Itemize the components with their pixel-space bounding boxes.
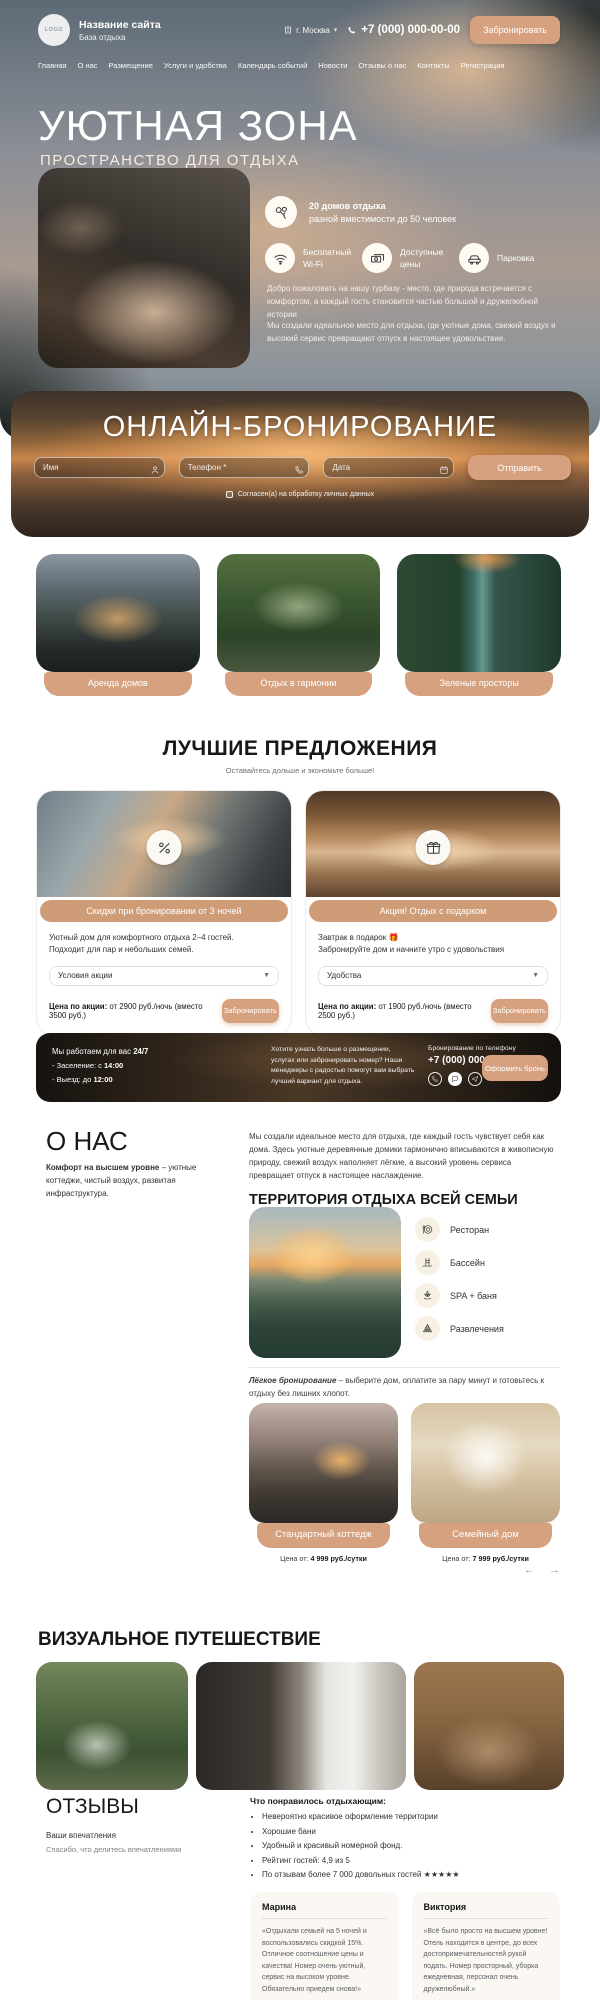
card-green-spaces: Зеленые просторы [397,554,561,696]
card-house-rental: Аренда домов [36,554,200,696]
next-arrow-icon[interactable]: → [549,1564,560,1576]
phone-icon [347,26,356,35]
house-rental-photo [36,554,200,672]
offer-gift-line2: Забронируйте дом и начните утро с удовол… [318,944,548,956]
gallery-photo-hot-tub[interactable] [36,1662,188,1790]
consent-row: Согласен(а) на обработку личных данных [11,491,589,498]
banner-book-button[interactable]: Оформить бронь [482,1055,548,1081]
harmony-label[interactable]: Отдых в гармонии [225,672,373,696]
price-label: Цена по акции: [49,1002,107,1011]
telegram-icon[interactable] [468,1072,482,1086]
gallery [36,1662,564,1790]
site-name-block: Название сайта База отдыха [79,19,161,42]
reviews-subtitle-2: Спасибо, что делитесь впечатлениями [46,1845,181,1854]
restaurant-icon [415,1217,440,1242]
city-label: г. Москва [296,26,330,35]
money-icon [362,243,392,273]
reviews-subtitle-1: Ваши впечатления [46,1831,116,1840]
nav-item-reviews[interactable]: Отзывы о нас [358,61,406,70]
reviews-title: ОТЗЫВЫ [46,1795,139,1819]
about-lead: Комфорт на высшем уровне – уютные коттед… [46,1162,218,1200]
prev-arrow-icon[interactable]: ← [524,1564,535,1576]
offer-gift-price: Цена по акции: от 1900 руб./ночь (вместо… [318,1002,491,1020]
booking-form: Отправить [34,455,571,480]
review-text: «Отдыхали семьей на 5 ночей и воспользов… [262,1926,387,1995]
house-rental-label[interactable]: Аренда домов [44,672,192,696]
nav-item-main[interactable]: Главная [38,61,67,70]
consent-label: Согласен(а) на обработку личных данных [238,491,374,498]
offer-cards: Скидки при бронировании от 3 ночей Уютны… [36,790,561,1036]
hero-paragraph-2: Мы создали идеальное место для отдыха, г… [267,320,559,346]
divider [249,1367,560,1368]
header: LOGO Название сайта База отдыха г. Москв… [38,14,560,46]
amenities-list: Ресторан Бассейн SPA + баня Развлечения [415,1207,504,1358]
consent-checkbox[interactable] [226,491,233,498]
amenity-restaurant: Ресторан [415,1217,504,1242]
amenity-entertainment: Развлечения [415,1316,504,1341]
territory-block: Ресторан Бассейн SPA + баня Развлечения [249,1207,560,1358]
green-spaces-photo [397,554,561,672]
feature-prices-label: Доступные цены [400,246,459,271]
reviewer-name: Марина [262,1902,387,1919]
hero-subtitle: ПРОСТРАНСТВО ДЛЯ ОТДЫХА [40,152,300,169]
chevron-down-icon: ▾ [334,26,338,34]
nav-item-accommodation[interactable]: Размещение [109,61,153,70]
whatsapp-icon[interactable] [428,1072,442,1086]
working-hours: Мы работаем для вас 24/7 - Заселение: с … [52,1047,148,1084]
house-card-family: Семейный дом Цена от: 7 999 руб./сутки [411,1403,560,1563]
offer-discount-price: Цена по акции: от 2900 руб./ночь (вместо… [49,1002,222,1020]
offer-discount-text: Уютный дом для комфортного отдыха 2–4 го… [37,922,291,957]
banner-phone-label: Бронирование по телефону [428,1045,516,1052]
territory-title: ТЕРРИТОРИЯ ОТДЫХА ВСЕЙ СЕМЬИ [249,1192,518,1208]
building-icon [284,26,292,34]
offer-discount-badge: Скидки при бронировании от 3 ночей [40,900,288,922]
highlight-cards: Аренда домов Отдых в гармонии Зеленые пр… [36,554,561,696]
amenity-pool: Бассейн [415,1250,504,1275]
gallery-photo-sauna[interactable] [414,1662,564,1790]
offer-discount-line2: Подходит для пар и небольших семей. [49,944,279,956]
date-field-wrap [323,457,454,478]
date-input[interactable] [323,457,454,478]
feature-wifi-label: Бесплатный Wi-Fi [303,246,362,271]
standard-cottage-label[interactable]: Стандартный коттедж [257,1523,390,1548]
phone-number: +7 (000) 000-00-00 [361,24,460,36]
nav-item-news[interactable]: Новости [318,61,347,70]
offer-discount-footer: Цена по акции: от 2900 руб./ночь (вместо… [49,999,279,1023]
offer-discount-line1: Уютный дом для комфортного отдыха 2–4 го… [49,932,279,944]
contact-banner: Мы работаем для вас 24/7 - Заселение: с … [36,1033,561,1102]
offer-gift-book-button[interactable]: Забронировать [491,999,548,1023]
price-from-label: Цена от: [442,1554,472,1563]
checkin-prefix: - Заселение: с [52,1061,104,1070]
viber-icon[interactable] [448,1072,462,1086]
offer-discount-photo [37,791,291,897]
liked-title: Что понравилось отдыхающим: [250,1796,386,1806]
about-lead-bold: Комфорт на высшем уровне [46,1163,159,1172]
checkout-prefix: - Выезд: до [52,1075,93,1084]
house-cards: Стандартный коттедж Цена от: 4 999 руб./… [249,1403,560,1563]
book-button[interactable]: Забронировать [470,16,560,44]
offer-card-gift: Акция! Отдых с подарком Завтрак в подаро… [305,790,561,1036]
standard-cottage-price: Цена от: 4 999 руб./сутки [249,1554,398,1563]
phone-small-icon [294,462,304,472]
offer-gift-line1: Завтрак в подарок 🎁 [318,932,548,944]
checkin-line: - Заселение: с 14:00 [52,1061,148,1070]
hero-paragraph-1: Добро пожаловать на нашу турбазу - место… [267,283,559,321]
review-card-marina: Марина «Отдыхали семьей на 5 ночей и вос… [250,1892,399,2000]
feature-houses-line2: разной вместимости до 50 человек [309,214,456,224]
feature-parking-label: Парковка [497,252,534,264]
logo[interactable]: LOGO [38,14,70,46]
offers-subtitle: Оставайтесь дольше и экономьте больше! [0,766,600,775]
checkout-line: - Выезд: до 12:00 [52,1075,148,1084]
about-title: О НАС [46,1126,128,1157]
phone-input[interactable] [179,457,310,478]
hero-title: УЮТНАЯ ЗОНА [38,102,358,150]
family-house-label[interactable]: Семейный дом [419,1523,552,1548]
offer-gift-select-value: Удобства [327,971,361,980]
entertainment-icon [415,1316,440,1341]
offer-gift-badge: Акция! Отдых с подарком [309,900,557,922]
price-from-value: 7 999 руб./сутки [473,1554,529,1563]
feature-houses: 20 домов отдыха разной вместимости до 50… [265,196,565,228]
feature-row: Бесплатный Wi-Fi Доступные цены Парковка [265,243,565,273]
territory-photo [249,1207,401,1358]
nav-item-about[interactable]: О нас [78,61,98,70]
gallery-title: ВИЗУАЛЬНОЕ ПУТЕШЕСТВИЕ [38,1629,321,1651]
house-card-standard: Стандартный коттедж Цена от: 4 999 руб./… [249,1403,398,1563]
amenity-entertainment-label: Развлечения [450,1324,504,1334]
offer-gift-footer: Цена по акции: от 1900 руб./ночь (вместо… [318,999,548,1023]
site-tagline: База отдыха [79,33,161,42]
city-selector[interactable]: г. Москва ▾ [284,26,337,35]
standard-cottage-photo [249,1403,398,1523]
price-from-value: 4 999 руб./сутки [311,1554,367,1563]
chevron-down-icon: ▼ [532,972,539,979]
feature-houses-line1: 20 домов отдыха [309,201,456,211]
booking-title: ОНЛАЙН-БРОНИРОВАНИЕ [11,411,589,444]
offer-gift-select[interactable]: Удобства ▼ [318,966,548,986]
offer-discount-book-button[interactable]: Забронировать [222,999,279,1023]
name-input[interactable] [34,457,165,478]
keys-icon [265,196,297,228]
green-spaces-label[interactable]: Зеленые просторы [405,672,553,696]
family-house-photo [411,1403,560,1523]
offer-discount-select-value: Условия акции [58,971,113,980]
offer-gift-photo [306,791,560,897]
family-house-price: Цена от: 7 999 руб./сутки [411,1554,560,1563]
submit-button[interactable]: Отправить [468,455,571,480]
liked-item: Невероятно красивое оформление территори… [262,1810,552,1824]
liked-item: Хорошие бани [262,1825,552,1839]
harmony-photo [217,554,381,672]
main-nav: Главная О нас Размещение Услуги и удобст… [38,61,504,70]
nav-item-events[interactable]: Календарь событий [238,61,307,70]
liked-item: По отзывам более 7 000 довольных гостей … [262,1868,552,1882]
review-text: «Всё было просто на высшем уровне! Отель… [424,1926,549,1995]
amenity-spa-label: SPA + баня [450,1291,497,1301]
offer-discount-select[interactable]: Условия акции ▼ [49,966,279,986]
wifi-icon [265,243,295,273]
banner-text: Хотите узнать больше о размещении, услуг… [271,1045,416,1087]
amenity-spa: SPA + баня [415,1283,504,1308]
about-paragraph: Мы создали идеальное место для отдыха, г… [249,1131,555,1183]
feature-prices: Доступные цены [362,243,459,273]
gift-icon [416,830,451,865]
nav-item-services[interactable]: Услуги и удобства [164,61,227,70]
offer-card-discount: Скидки при бронировании от 3 ночей Уютны… [36,790,292,1036]
header-right: г. Москва ▾ +7 (000) 000-00-00 Заброниро… [284,16,560,44]
feature-parking: Парковка [459,243,534,273]
person-icon [150,462,160,472]
amenity-restaurant-label: Ресторан [450,1225,489,1235]
feature-houses-text: 20 домов отдыха разной вместимости до 50… [309,201,456,224]
hours-bold: 24/7 [133,1047,148,1056]
calendar-icon [439,462,449,472]
hero-interior-photo [38,168,250,368]
carousel-pager: ← → [524,1564,560,1576]
header-phone[interactable]: +7 (000) 000-00-00 [347,24,460,36]
reviewer-name: Виктория [424,1902,549,1919]
hero-section: LOGO Название сайта База отдыха г. Москв… [0,0,600,440]
nav-item-registration[interactable]: Регистрация [461,61,505,70]
pool-icon [415,1250,440,1275]
online-booking-section: ОНЛАЙН-БРОНИРОВАНИЕ Отправить Согласен(а… [11,391,589,537]
hours-title: Мы работаем для вас 24/7 [52,1047,148,1056]
name-field-wrap [34,457,165,478]
checkout-bold: 12:00 [93,1075,112,1084]
site-name: Название сайта [79,19,161,31]
page: LOGO Название сайта База отдыха г. Москв… [0,0,600,2000]
liked-item: Рейтинг гостей: 4,9 из 5 [262,1854,552,1868]
price-from-label: Цена от: [280,1554,310,1563]
phone-field-wrap [179,457,310,478]
spa-icon [415,1283,440,1308]
review-card-viktoria: Виктория «Всё было просто на высшем уров… [412,1892,561,2000]
logo-text: LOGO [45,27,63,33]
gallery-photo-bedroom[interactable] [196,1662,406,1790]
checkin-bold: 14:00 [104,1061,123,1070]
hours-prefix: Мы работаем для вас [52,1047,133,1056]
amenity-pool-label: Бассейн [450,1258,485,1268]
card-harmony: Отдых в гармонии [217,554,381,696]
liked-item: Удобный и красивый номерной фонд. [262,1839,552,1853]
feature-wifi: Бесплатный Wi-Fi [265,243,362,273]
chevron-down-icon: ▼ [263,972,270,979]
price-label: Цена по акции: [318,1002,376,1011]
features: 20 домов отдыха разной вместимости до 50… [265,196,565,273]
easy-booking-text: Лёгкое бронирование – выберите дом, опла… [249,1375,561,1401]
liked-list: Невероятно красивое оформление территори… [262,1810,552,1883]
offers-title: ЛУЧШИЕ ПРЕДЛОЖЕНИЯ [0,737,600,761]
offer-gift-text: Завтрак в подарок 🎁 Забронируйте дом и н… [306,922,560,957]
nav-item-contacts[interactable]: Контакты [417,61,449,70]
easy-booking-bold: Лёгкое бронирование [249,1376,336,1385]
car-icon [459,243,489,273]
review-cards: Марина «Отдыхали семьей на 5 ночей и вос… [250,1892,560,2000]
percent-icon [147,830,182,865]
